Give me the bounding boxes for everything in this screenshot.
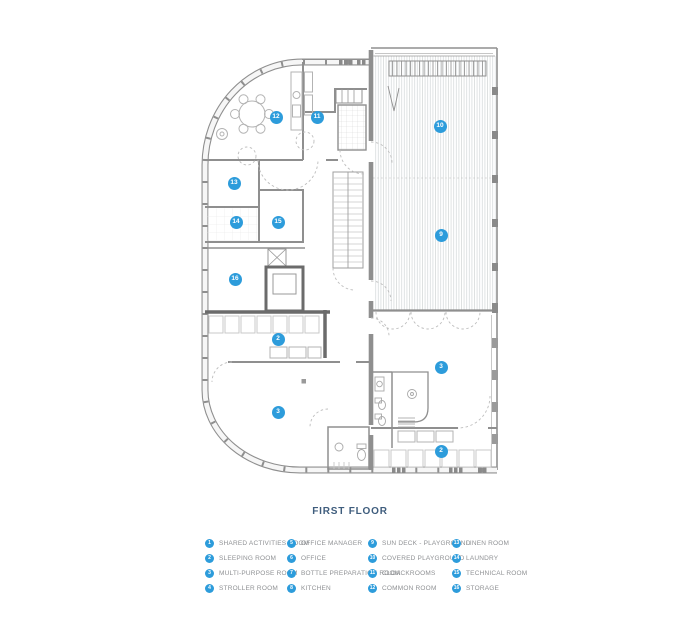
- legend-label: MULTI-PURPOSE ROOM: [219, 570, 298, 577]
- legend-number-badge: 12: [368, 584, 377, 593]
- legend-number-badge: 10: [368, 554, 377, 563]
- legend-label: OFFICE MANAGER: [301, 540, 362, 547]
- legend-item-14: 14 LAUNDRY: [452, 551, 527, 566]
- floor-plan-page: 1211101314151692332 FIRST FLOOR 1 SHARED…: [0, 0, 700, 635]
- page-title: FIRST FLOOR: [0, 506, 700, 517]
- legend-label: LINEN ROOM: [466, 540, 509, 547]
- legend-number-badge: 6: [287, 554, 296, 563]
- legend-label: CLOACKROOMS: [382, 570, 436, 577]
- legend-number-badge: 2: [205, 554, 214, 563]
- legend-label: OFFICE: [301, 555, 326, 562]
- playground-deck-region: [371, 48, 497, 311]
- legend-number-badge: 1: [205, 539, 214, 548]
- legend-label: STORAGE: [466, 585, 499, 592]
- legend-number-badge: 14: [452, 554, 461, 563]
- legend-number-badge: 16: [452, 584, 461, 593]
- room-marker-11: 11: [311, 111, 324, 124]
- legend-label: STROLLER ROOM: [219, 585, 278, 592]
- legend-item-16: 16 STORAGE: [452, 581, 527, 596]
- legend-label: SLEEPING ROOM: [219, 555, 276, 562]
- spine-wall: [368, 50, 374, 470]
- legend-column-4: 13 LINEN ROOM 14 LAUNDRY 15 TECHNICAL RO…: [452, 536, 527, 596]
- legend-label: LAUNDRY: [466, 555, 498, 562]
- legend-item-13: 13 LINEN ROOM: [452, 536, 527, 551]
- room-marker-9: 9: [435, 229, 448, 242]
- room-marker-13: 13: [228, 177, 241, 190]
- room-marker-2: 2: [435, 445, 448, 458]
- sanitary-fixtures: [334, 372, 428, 469]
- legend-number-badge: 5: [287, 539, 296, 548]
- legend-number-badge: 8: [287, 584, 296, 593]
- legend-number-badge: 15: [452, 569, 461, 578]
- room-marker-2: 2: [272, 333, 285, 346]
- room-marker-14: 14: [230, 216, 243, 229]
- lift-shaft: [266, 249, 303, 311]
- legend-label: COMMON ROOM: [382, 585, 437, 592]
- room-marker-10: 10: [434, 120, 447, 133]
- room-marker-3: 3: [272, 406, 285, 419]
- legend-number-badge: 13: [452, 539, 461, 548]
- legend-number-badge: 4: [205, 584, 214, 593]
- legend-item-15: 15 TECHNICAL ROOM: [452, 566, 527, 581]
- room-marker-16: 16: [229, 273, 242, 286]
- legend-label: TECHNICAL ROOM: [466, 570, 527, 577]
- legend: 1 SHARED ACTIVITIES ROOM 2 SLEEPING ROOM…: [0, 536, 700, 606]
- room-marker-15: 15: [272, 216, 285, 229]
- legend-label: KITCHEN: [301, 585, 331, 592]
- room-marker-3: 3: [435, 361, 448, 374]
- legend-number-badge: 9: [368, 539, 377, 548]
- legend-number-badge: 3: [205, 569, 214, 578]
- room-marker-12: 12: [270, 111, 283, 124]
- legend-number-badge: 7: [287, 569, 296, 578]
- legend-number-badge: 11: [368, 569, 377, 578]
